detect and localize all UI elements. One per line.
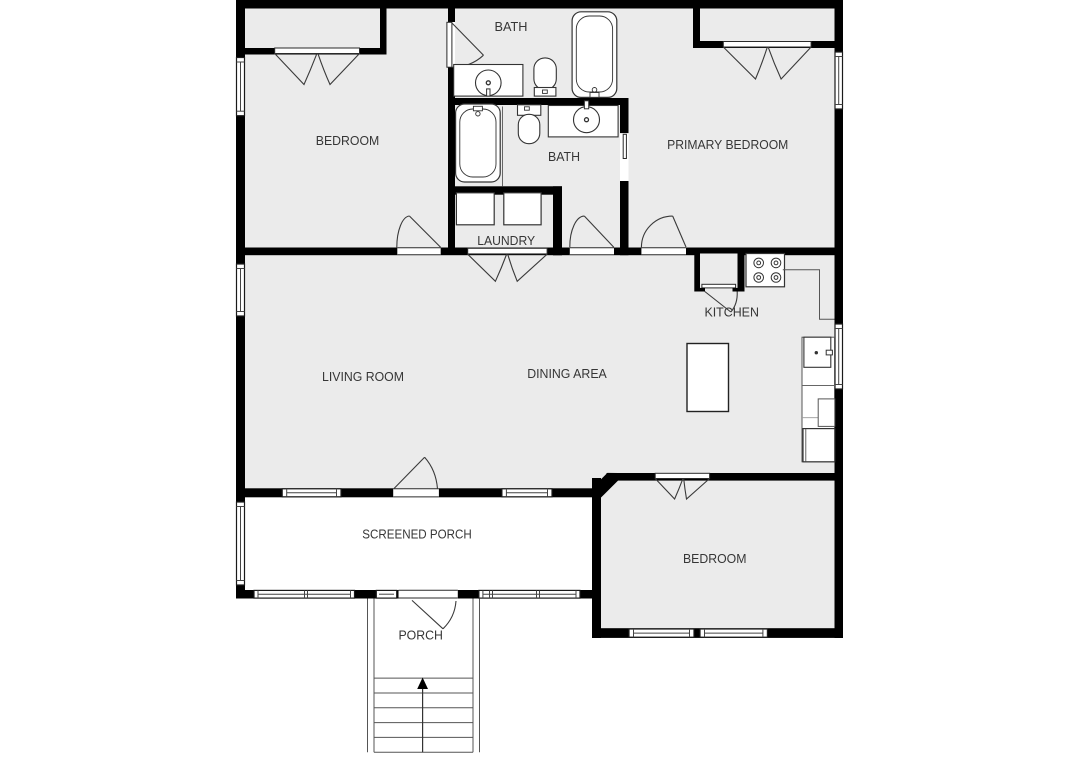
svg-text:LIVING ROOM: LIVING ROOM bbox=[322, 369, 404, 384]
svg-text:BATH: BATH bbox=[495, 19, 528, 34]
svg-text:PRIMARY BEDROOM: PRIMARY BEDROOM bbox=[667, 137, 788, 152]
svg-text:BEDROOM: BEDROOM bbox=[683, 551, 747, 566]
svg-text:LAUNDRY: LAUNDRY bbox=[477, 233, 535, 248]
svg-text:BATH: BATH bbox=[548, 149, 580, 164]
svg-text:SCREENED PORCH: SCREENED PORCH bbox=[362, 526, 471, 541]
svg-text:PORCH: PORCH bbox=[398, 628, 443, 643]
svg-text:BEDROOM: BEDROOM bbox=[316, 133, 380, 148]
svg-text:KITCHEN: KITCHEN bbox=[704, 305, 759, 320]
svg-text:DINING AREA: DINING AREA bbox=[527, 366, 607, 381]
